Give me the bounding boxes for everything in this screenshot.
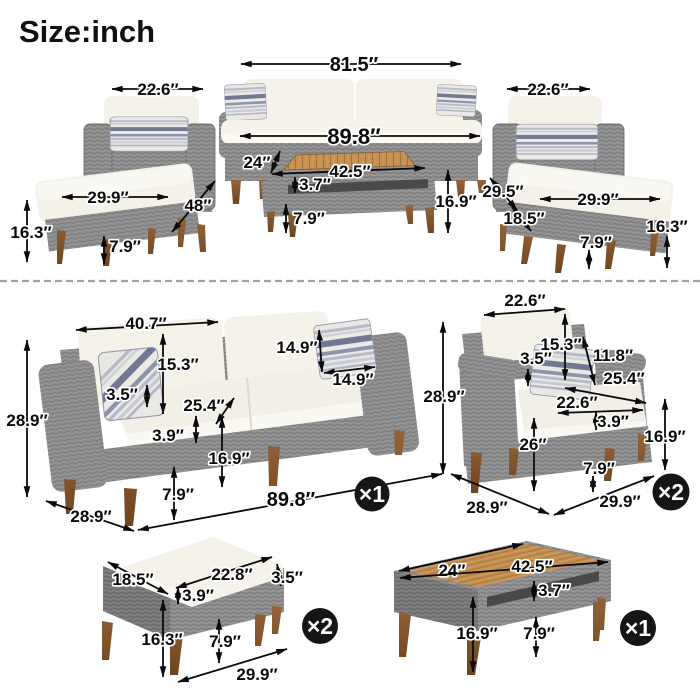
svg-text:26″: 26″ [519,435,546,454]
svg-text:×2: ×2 [307,613,333,639]
svg-text:16.9″: 16.9″ [456,624,497,643]
svg-text:28.9″: 28.9″ [70,507,111,526]
svg-text:24″: 24″ [438,561,465,580]
svg-text:25.4″: 25.4″ [603,369,644,388]
svg-text:7.9″: 7.9″ [523,624,555,643]
svg-text:29.9″: 29.9″ [599,492,640,511]
svg-text:11.8″: 11.8″ [593,346,633,365]
svg-text:14.9″: 14.9″ [332,370,373,389]
svg-text:22.6″: 22.6″ [556,393,597,412]
svg-text:29.9″: 29.9″ [577,190,618,209]
svg-text:Size:inch: Size:inch [19,14,155,49]
svg-text:42.5″: 42.5″ [329,162,370,181]
svg-text:22.6″: 22.6″ [137,80,178,99]
svg-text:7.9″: 7.9″ [293,209,325,228]
svg-text:7.9″: 7.9″ [209,632,241,651]
svg-text:7.9″: 7.9″ [162,485,194,504]
svg-text:×1: ×1 [625,615,651,641]
svg-text:28.9″: 28.9″ [423,387,464,406]
svg-text:42.5″: 42.5″ [511,557,552,576]
svg-text:16.9″: 16.9″ [435,192,476,211]
svg-text:3.9″: 3.9″ [182,586,214,605]
svg-text:3.7″: 3.7″ [299,175,331,194]
svg-text:22.6″: 22.6″ [504,291,545,310]
svg-text:×2: ×2 [658,479,684,505]
svg-text:28.9″: 28.9″ [466,498,507,517]
svg-text:48″: 48″ [184,196,211,215]
svg-text:3.5″: 3.5″ [520,349,552,368]
svg-text:89.8″: 89.8″ [327,124,381,149]
svg-text:7.9″: 7.9″ [583,459,615,478]
svg-text:3.5″: 3.5″ [271,568,303,587]
svg-text:3.5″: 3.5″ [106,385,138,404]
svg-text:16.3″: 16.3″ [646,217,687,236]
svg-text:16.3″: 16.3″ [10,223,51,242]
svg-text:3.7″: 3.7″ [538,581,570,600]
svg-text:3.9″: 3.9″ [597,412,629,431]
svg-text:22.8″: 22.8″ [211,565,252,584]
svg-text:18.5″: 18.5″ [503,209,544,228]
svg-text:15.3″: 15.3″ [157,355,198,374]
svg-text:18.5″: 18.5″ [112,570,153,589]
svg-text:29.9″: 29.9″ [236,665,277,684]
svg-text:22.6″: 22.6″ [527,80,568,99]
svg-text:24″: 24″ [243,153,270,172]
svg-text:81.5″: 81.5″ [330,54,379,76]
svg-text:16.9″: 16.9″ [644,427,685,446]
svg-text:14.9″: 14.9″ [276,338,317,357]
svg-text:29.9″: 29.9″ [87,188,128,207]
svg-text:89.8″: 89.8″ [267,489,316,511]
svg-text:16.3″: 16.3″ [141,630,182,649]
svg-text:3.9″: 3.9″ [152,426,184,445]
svg-text:×1: ×1 [359,481,385,507]
svg-text:16.9″: 16.9″ [208,449,249,468]
svg-text:7.9″: 7.9″ [109,237,141,256]
svg-text:25.4″: 25.4″ [183,396,224,415]
svg-text:28.9″: 28.9″ [6,411,47,430]
svg-text:7.9″: 7.9″ [580,233,612,252]
svg-text:40.7″: 40.7″ [125,314,166,333]
svg-text:29.5″: 29.5″ [482,182,523,201]
